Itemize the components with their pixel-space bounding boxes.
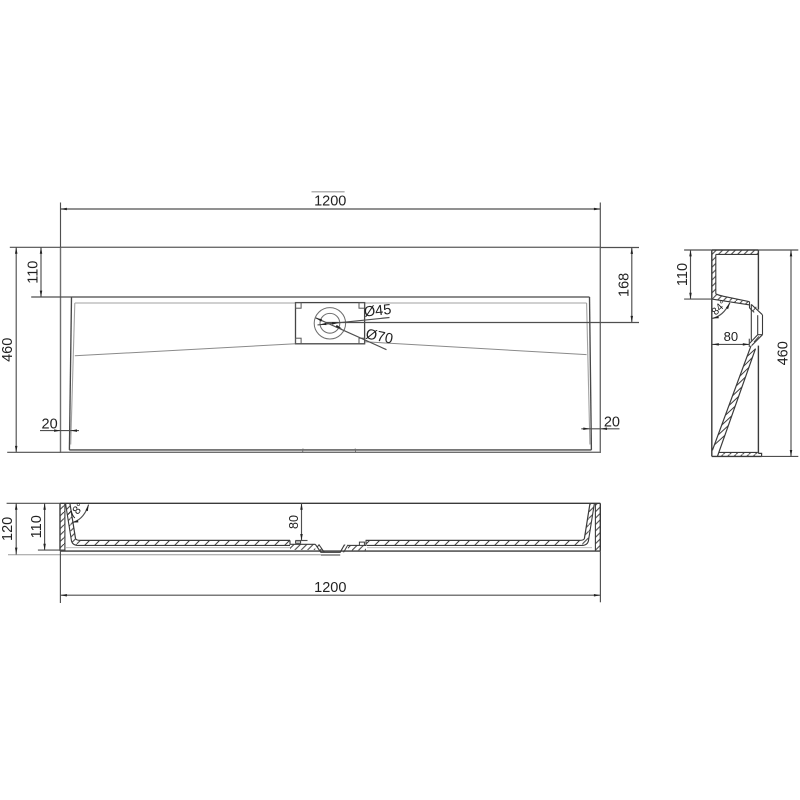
svg-text:1200: 1200 bbox=[314, 580, 346, 596]
svg-text:110: 110 bbox=[29, 515, 45, 538]
svg-text:460: 460 bbox=[776, 341, 792, 365]
svg-text:80: 80 bbox=[287, 515, 301, 529]
svg-text:110: 110 bbox=[25, 261, 41, 284]
svg-text:110: 110 bbox=[675, 263, 691, 286]
svg-text:168: 168 bbox=[617, 273, 633, 297]
svg-text:80: 80 bbox=[724, 329, 738, 344]
svg-text:1200: 1200 bbox=[314, 193, 346, 209]
svg-text:460: 460 bbox=[0, 338, 16, 362]
svg-text:120: 120 bbox=[0, 517, 16, 541]
svg-text:Ø45: Ø45 bbox=[363, 302, 392, 321]
svg-text:20: 20 bbox=[42, 416, 58, 432]
svg-text:20: 20 bbox=[604, 414, 620, 430]
